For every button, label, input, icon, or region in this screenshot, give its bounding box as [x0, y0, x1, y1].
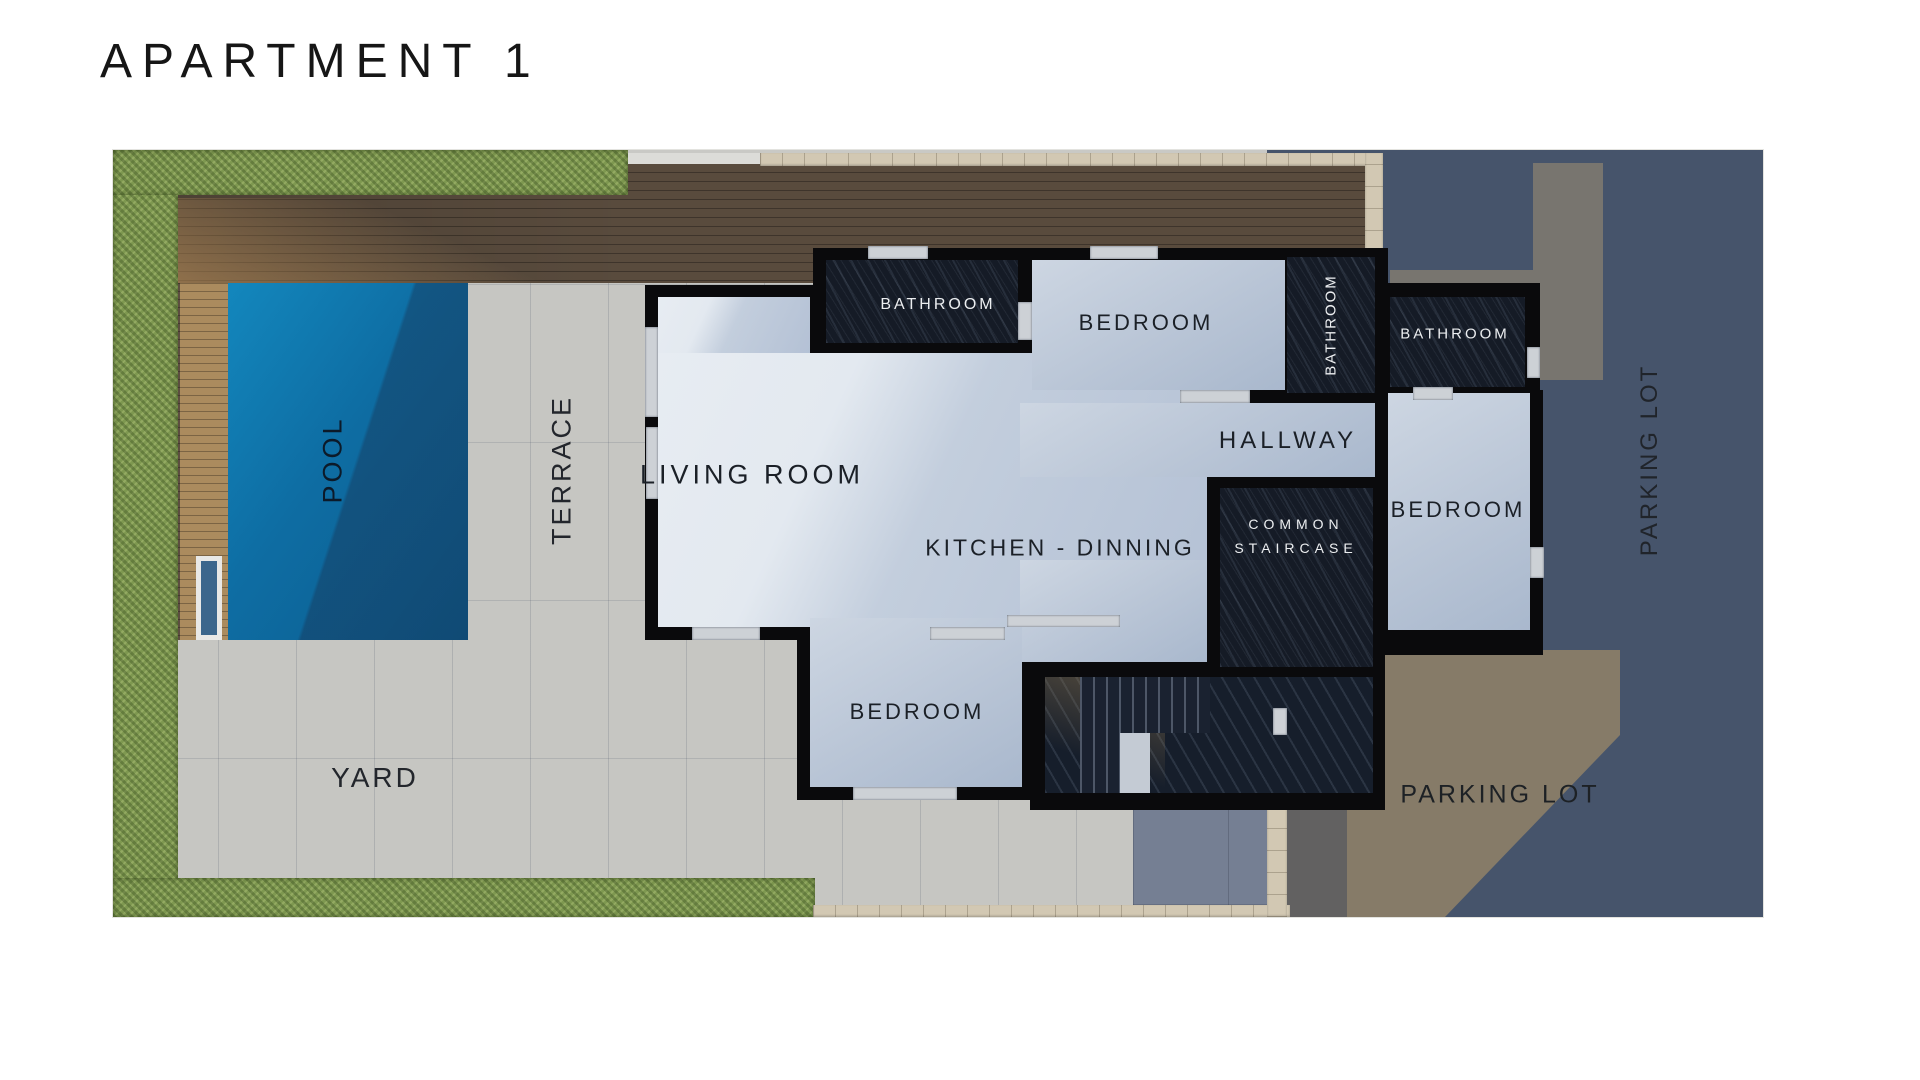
bedroom-bottom-label: BEDROOM — [850, 699, 985, 725]
window — [868, 246, 928, 259]
bathroom-right-label: BATHROOM — [1400, 326, 1510, 343]
yard-label: YARD — [331, 762, 419, 794]
terrace-label: TERRACE — [547, 395, 578, 545]
room-living-room — [658, 297, 810, 353]
parking-lot-bottom-label: PARKING LOT — [1400, 781, 1599, 810]
door-sill — [1273, 708, 1287, 735]
stone-wall-bottom-vertical — [1267, 800, 1287, 917]
page-title: APARTMENT 1 — [100, 34, 541, 89]
bedroom-right-label: BEDROOM — [1391, 497, 1526, 523]
living-room-label: LIVING ROOM — [640, 460, 864, 491]
stair-landing — [1120, 733, 1150, 793]
deck-sunlight — [140, 198, 580, 283]
hedge-bottom — [113, 878, 815, 917]
hallway-label: HALLWAY — [1219, 427, 1357, 455]
bathroom-top-label: BATHROOM — [880, 296, 995, 314]
stone-wall-bottom — [813, 905, 1290, 917]
window — [1090, 246, 1158, 259]
stair-treads — [1080, 733, 1120, 793]
parking-lot-right-label: PARKING LOT — [1636, 364, 1664, 557]
window — [853, 787, 957, 800]
stone-wall-top-vertical — [1365, 153, 1383, 253]
window — [645, 327, 658, 417]
staircase-lower — [1045, 677, 1373, 793]
site-wall-pale — [628, 153, 760, 164]
kitchen-dining-label: KITCHEN - DINNING — [925, 535, 1195, 562]
room-kitchen-lower — [1020, 560, 1207, 662]
window — [692, 627, 760, 640]
hedge-left — [113, 150, 178, 917]
floor-plan: POOL TERRACE YARD — [113, 150, 1763, 917]
window — [1530, 547, 1544, 578]
door-sill — [1018, 302, 1032, 340]
window — [1527, 347, 1540, 378]
pool-ladder — [196, 556, 222, 640]
common-staircase-line2: STAIRCASE — [1234, 537, 1357, 561]
hedge-top — [113, 150, 628, 195]
door-sill — [1007, 615, 1120, 627]
door-sill — [930, 627, 1005, 640]
stair-treads — [1080, 677, 1210, 733]
door-sill — [1413, 387, 1453, 400]
pool-label: POOL — [318, 416, 349, 503]
bedroom-top-label: BEDROOM — [1079, 310, 1214, 336]
common-staircase-label: COMMON STAIRCASE — [1234, 513, 1357, 561]
common-staircase-line1: COMMON — [1234, 513, 1357, 537]
door-sill — [1180, 390, 1250, 403]
stone-wall-top — [760, 153, 1383, 166]
parking-shadow — [1287, 800, 1347, 917]
bathroom-mid-label: BATHROOM — [1323, 274, 1340, 376]
